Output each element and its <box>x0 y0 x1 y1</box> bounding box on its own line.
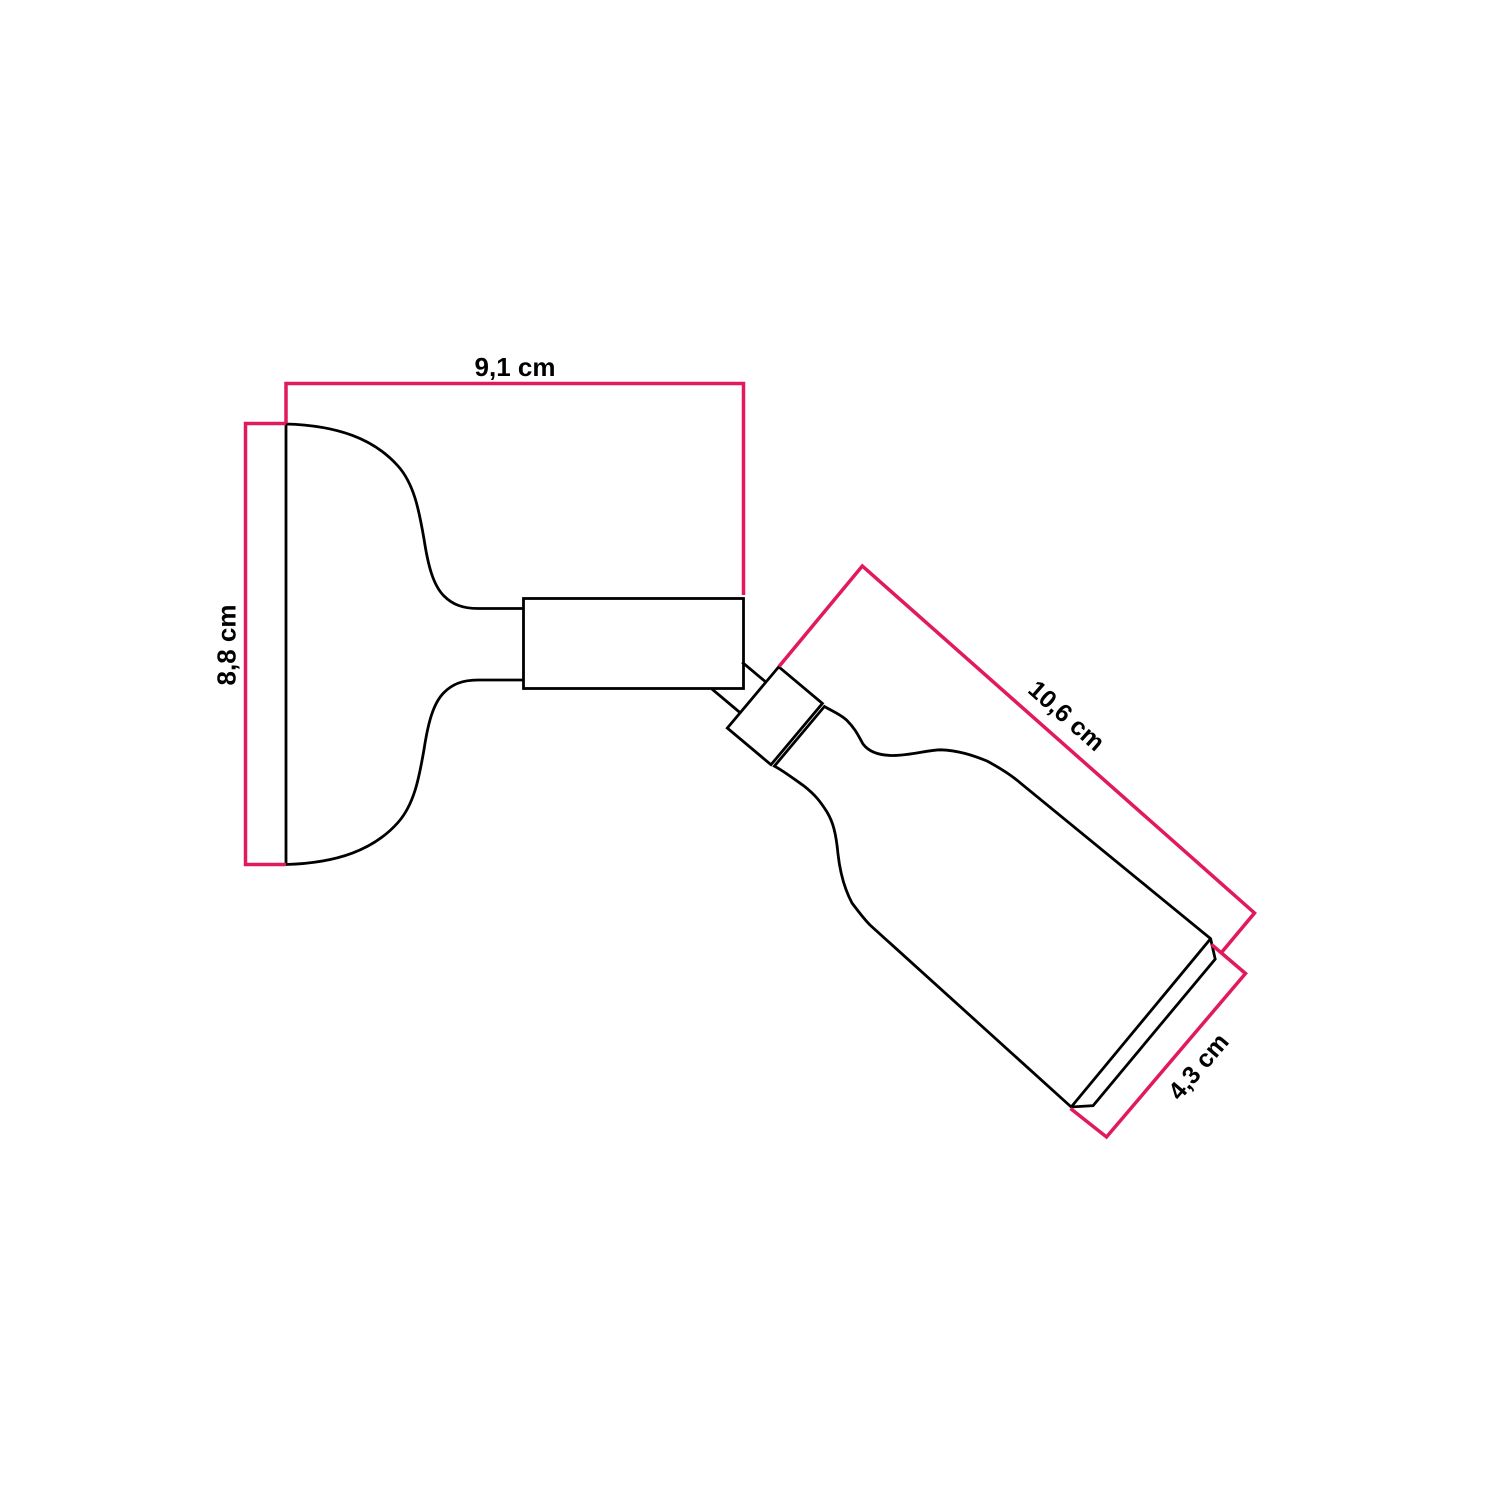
svg-text:9,1 cm: 9,1 cm <box>475 352 556 382</box>
svg-text:8,8 cm: 8,8 cm <box>212 605 242 686</box>
svg-text:4,3 cm: 4,3 cm <box>1163 1028 1235 1105</box>
